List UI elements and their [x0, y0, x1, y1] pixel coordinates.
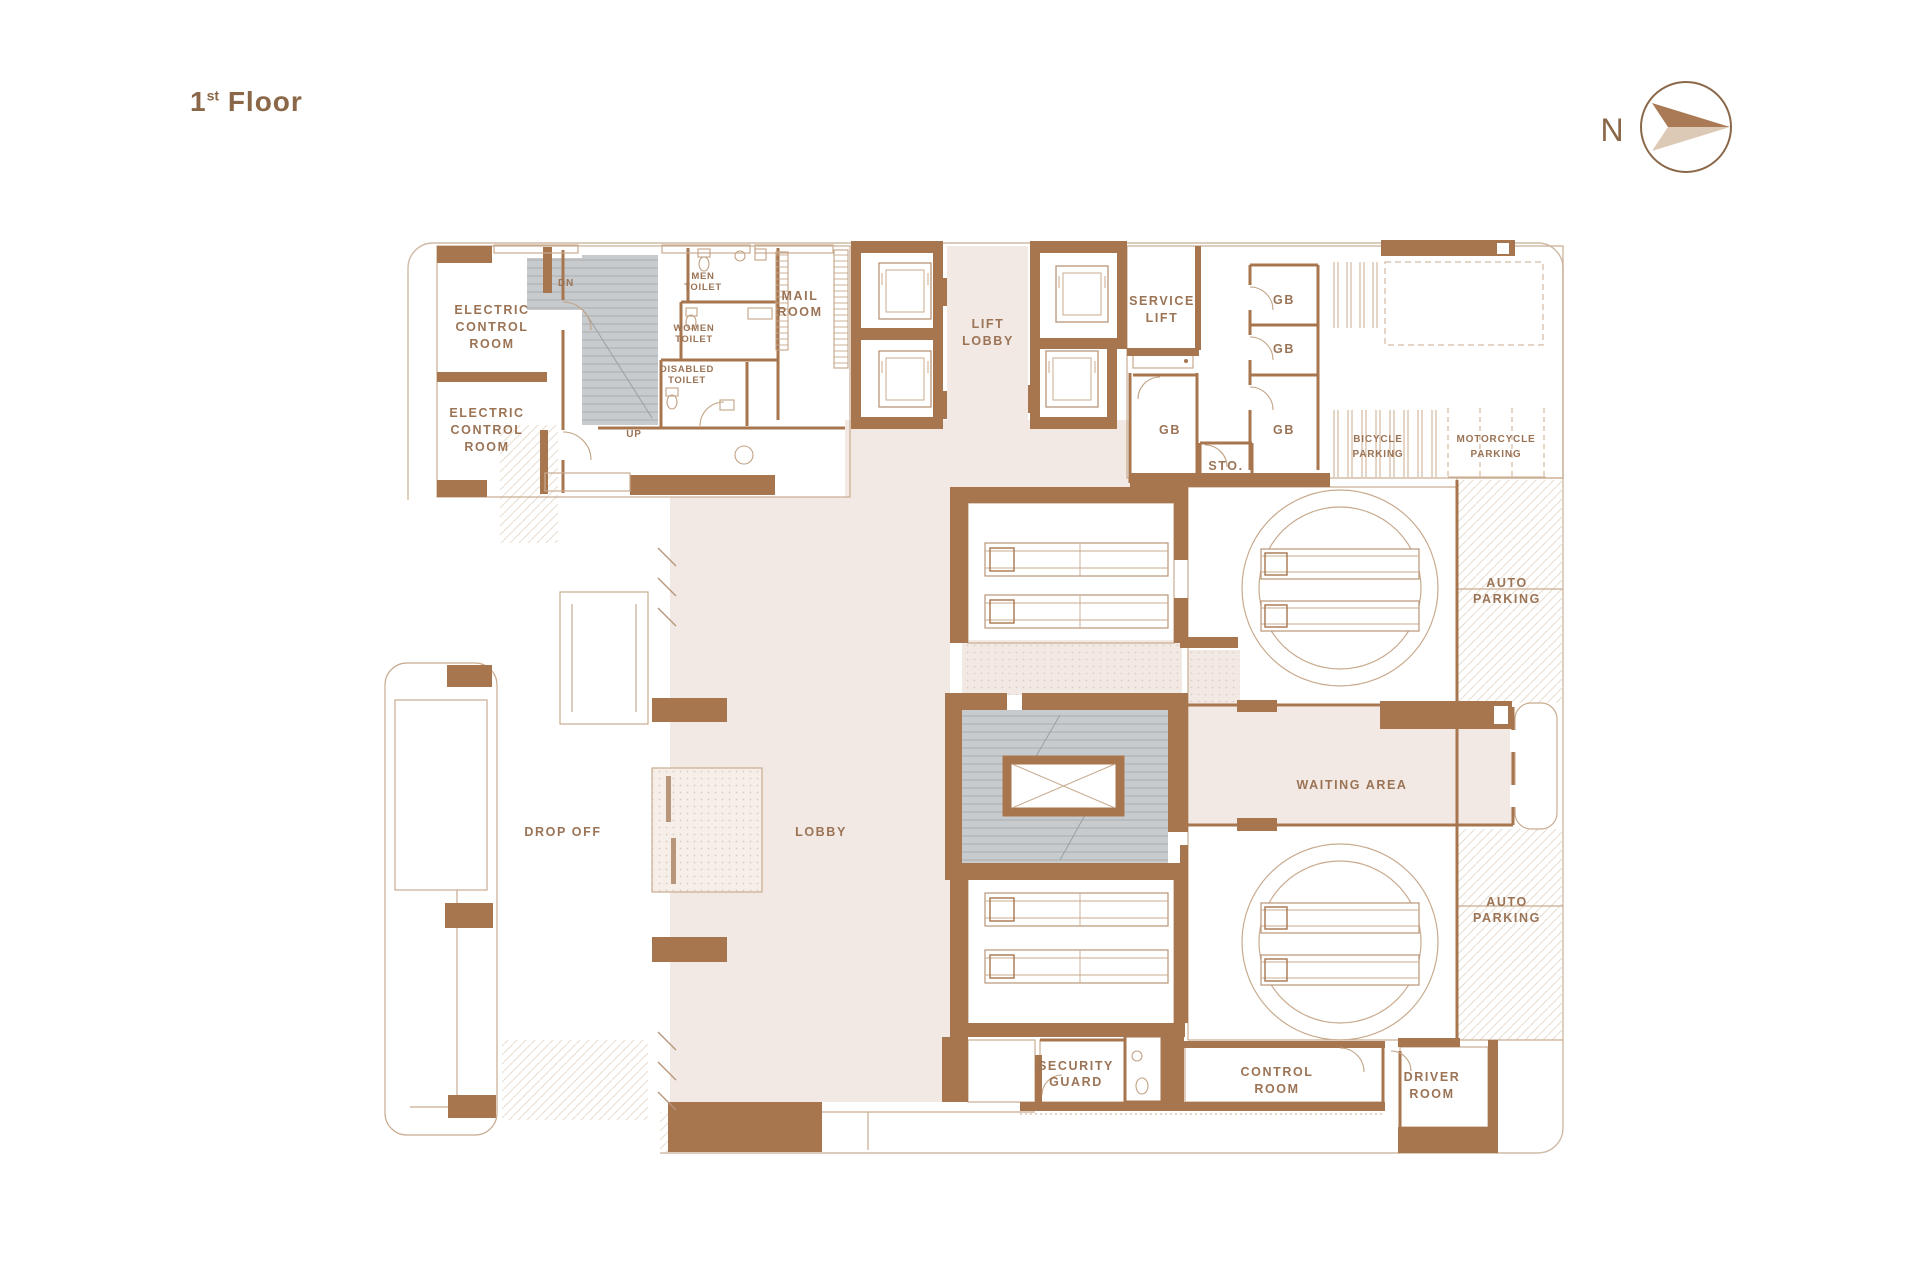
room-label: STO. [1208, 459, 1243, 473]
room-label: ROOM [1254, 1082, 1299, 1096]
floor-plan-page: 1st Floor [0, 0, 1920, 1280]
room-label: DROP OFF [524, 825, 601, 839]
room-label: GUARD [1049, 1075, 1103, 1089]
room-label: MAIL [782, 289, 819, 303]
room-label: LOBBY [795, 825, 847, 839]
room-label: TOILET [684, 282, 722, 293]
room-label: AUTO [1486, 576, 1528, 590]
room-label: DRIVER [1404, 1070, 1461, 1084]
room-label: GB [1273, 293, 1295, 307]
room-label: SERVICE [1129, 294, 1195, 308]
stair-dn-label: DN [558, 278, 574, 289]
room-label: MEN [691, 271, 714, 282]
room-label: PARKING [1473, 911, 1541, 925]
drop-off-island [385, 663, 497, 1135]
room-label: WAITING AREA [1296, 778, 1407, 792]
north-arrow-icon [1652, 127, 1730, 151]
stair-up-label: UP [626, 429, 642, 440]
room-label: CONTROL [1241, 1065, 1314, 1079]
room-label: ROOM [469, 337, 514, 351]
room-label: GB [1159, 423, 1181, 437]
room-label: LOBBY [962, 334, 1014, 348]
room-label: CONTROL [456, 320, 529, 334]
room-label: ELECTRIC [454, 303, 529, 317]
lobby-feature [560, 592, 648, 724]
north-arrow-icon [1652, 103, 1730, 127]
room-label: SECURITY [1038, 1059, 1114, 1073]
north-label: N [1600, 112, 1623, 148]
room-label: WOMEN [674, 323, 715, 334]
room-label: TOILET [675, 334, 713, 345]
room-label: CONTROL [451, 423, 524, 437]
planter [448, 1095, 496, 1118]
room-label: MOTORCYCLE [1457, 434, 1536, 445]
room-label: LIFT [972, 317, 1005, 331]
room-label: GB [1273, 342, 1295, 356]
room-label: ROOM [464, 440, 509, 454]
room-label: AUTO [1486, 895, 1528, 909]
room-label: PARKING [1473, 592, 1541, 606]
room-label: DISABLED [660, 364, 714, 375]
room-label: BICYCLE [1353, 434, 1403, 445]
north-compass: N [1600, 82, 1731, 172]
room-label: PARKING [1353, 449, 1404, 460]
room-label: GB [1273, 423, 1295, 437]
room-label: PARKING [1471, 449, 1522, 460]
room-label: ELECTRIC [449, 406, 524, 420]
room-label: ROOM [1409, 1087, 1454, 1101]
room-label: TOILET [668, 375, 706, 386]
planter [445, 903, 493, 928]
planter [447, 665, 492, 687]
floor-plan-drawing: N ELECTRIC CONTROL ROOM ELECTRIC CONTROL… [0, 0, 1920, 1280]
stairs-central [962, 710, 1168, 863]
room-label: LIFT [1146, 311, 1179, 325]
room-label: ROOM [777, 305, 822, 319]
